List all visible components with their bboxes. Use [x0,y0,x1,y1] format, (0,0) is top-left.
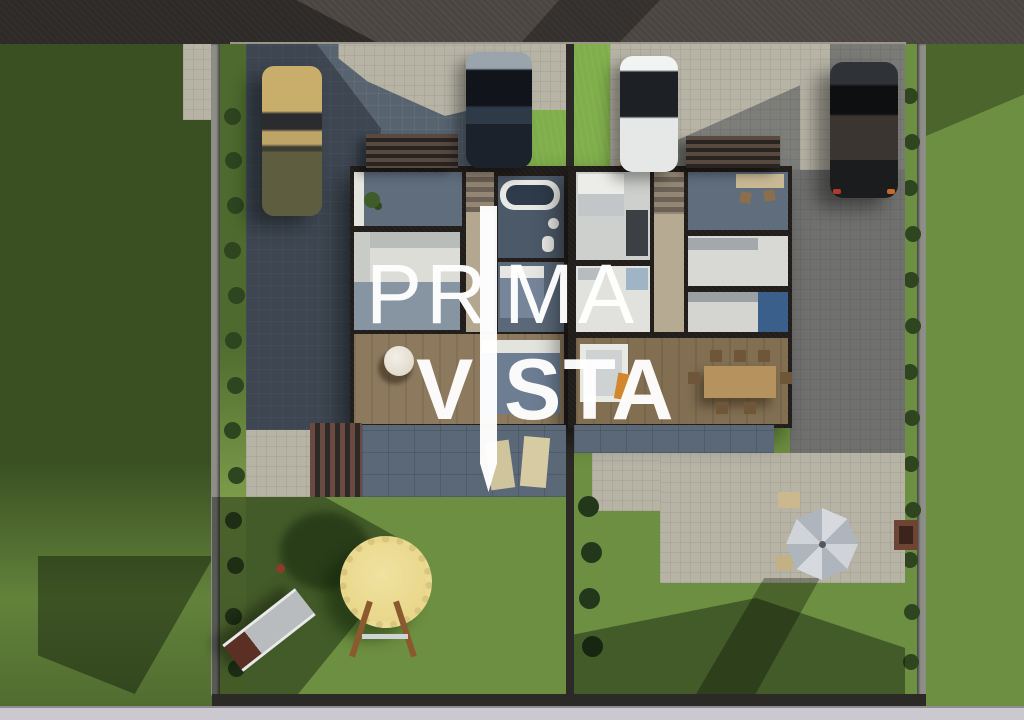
kitchen-right-counter [688,292,758,302]
plant [364,192,380,208]
planter-box-inner [899,526,913,544]
bed-right-blanket [578,194,624,216]
utility-counter [688,238,758,250]
patio-left-pale [246,430,310,497]
pergola-left [310,423,362,497]
bathroom-left [498,176,564,258]
garage-room [354,172,462,226]
taillight-left [833,189,841,194]
hedge-bushes-center [578,496,599,517]
dining-chair-4 [716,402,728,414]
watermark-text-sta: STA [504,347,676,433]
kitchen-right [688,292,788,332]
dining-chair-7 [780,372,792,384]
entry-canopy-left [366,134,458,168]
kitchen-right-cabinets [758,292,788,332]
fence-right [917,44,926,696]
dining-chair-5 [744,402,756,414]
lawn-right-shadow [926,44,1024,136]
desk [736,174,784,188]
garage-white-wall [354,172,364,226]
entry-canopy-right [686,136,780,168]
car-white [620,56,678,172]
dining-chair-6 [688,372,700,384]
car-navy [466,52,532,168]
desk-chair-2 [763,189,775,201]
dining-chair-1 [710,350,722,362]
toy-red [276,564,285,573]
aerial-render-scene: PR MA V STA [0,0,1024,720]
hedge-bushes-left [224,108,241,125]
driveway-right-side-shadow [790,170,905,500]
desk-chair-1 [739,191,752,204]
watermark-text-pr: PR [366,252,491,336]
dining-chair-2 [734,350,746,362]
car-black [830,62,898,198]
garden-table [778,492,800,508]
office-room [688,172,788,230]
planter-box [894,520,918,550]
car-tan [262,66,322,216]
staircase-right [654,172,684,214]
bathtub-basin [506,185,554,205]
watermark-text-v: V [416,347,475,433]
lounger-2 [520,436,550,488]
sink [548,218,559,229]
garden-chair [776,556,792,570]
taillight-right [887,189,895,194]
ladder-crossbar [362,634,408,639]
parasol-pole [819,541,826,548]
dining-table [704,366,776,398]
watermark-text-ma: MA [504,252,638,336]
dining-chair-3 [758,350,770,362]
hallway-right [654,172,684,332]
trampoline [340,536,432,628]
street-bottom [0,706,1024,720]
round-table [384,346,414,376]
front-lawn-right [574,44,610,170]
utility-room [688,236,788,286]
